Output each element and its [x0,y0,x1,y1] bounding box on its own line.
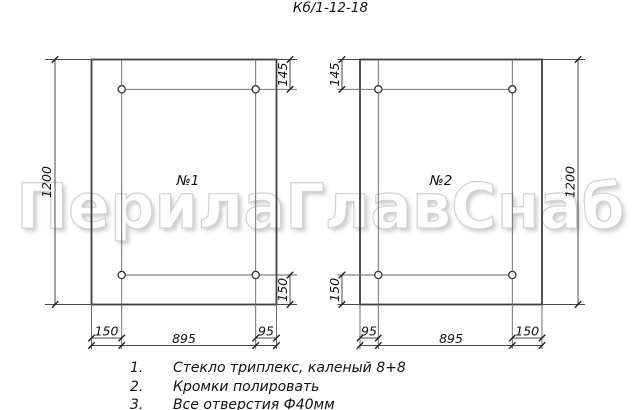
panel-1-label: №1 [176,173,200,189]
dim-value-height: 1200 [563,166,578,198]
dim-value-bottom-offset: 150 [275,278,290,302]
dim-value-top-offset: 145 [275,63,290,87]
dim-value-edge-right: 95 [258,324,274,339]
note-number: 2. [130,378,173,397]
drawing-canvas: ПерилаГлавСнаб Кб/1-12-18 [0,0,641,410]
hole [252,86,259,93]
note-number: 3. [130,396,173,410]
panel-2-height-dim: 1200 [542,56,585,307]
dim-value-edge-right: 150 [515,324,539,339]
note-text: Кромки полировать [173,378,319,397]
note-item: 2. Кромки полировать [130,378,406,397]
panel-1-width-dims: 150 95 895 [88,305,279,350]
hole [509,271,516,278]
note-item: 3. Все отверстия Ф40мм [130,396,406,410]
note-text: Все отверстия Ф40мм [173,396,335,410]
note-item: 1. Стекло триплекс, каленый 8+8 [130,359,406,378]
panel-2-label: №2 [429,173,453,189]
panel-1-bottom-offset-dim: 150 [275,272,297,308]
panel-1-height-dim: 1200 [39,56,92,307]
technical-drawing: 1200 145 150 [0,0,641,410]
panel-2-width-dims: 95 150 895 [357,305,545,350]
note-text: Стекло триплекс, каленый 8+8 [173,359,406,378]
notes-list: 1. Стекло триплекс, каленый 8+8 2. Кромк… [130,359,406,410]
hole [118,86,125,93]
drawing-title: Кб/1-12-18 [10,0,641,16]
dim-value-hole-span: 895 [172,331,196,346]
note-number: 1. [130,359,173,378]
hole [375,86,382,93]
dim-value-height: 1200 [39,166,54,198]
hole [252,271,259,278]
panel-1-top-offset-dim: 145 [275,56,297,92]
panel-2: 145 150 1200 [327,56,585,349]
panel-1: 1200 145 150 [39,56,297,349]
dim-value-edge-left: 95 [361,324,377,339]
dim-value-bottom-offset: 150 [327,278,342,302]
dim-value-top-offset: 145 [327,63,342,87]
hole [118,271,125,278]
hole [509,86,516,93]
panel-1-hole-axes [122,60,297,350]
panel-2-top-offset-dim: 145 [327,56,360,92]
panel-2-bottom-offset-dim: 150 [327,272,360,308]
dim-value-edge-left: 150 [95,324,119,339]
hole [375,271,382,278]
dim-value-hole-span: 895 [439,331,463,346]
panel-2-hole-axes [338,60,513,350]
